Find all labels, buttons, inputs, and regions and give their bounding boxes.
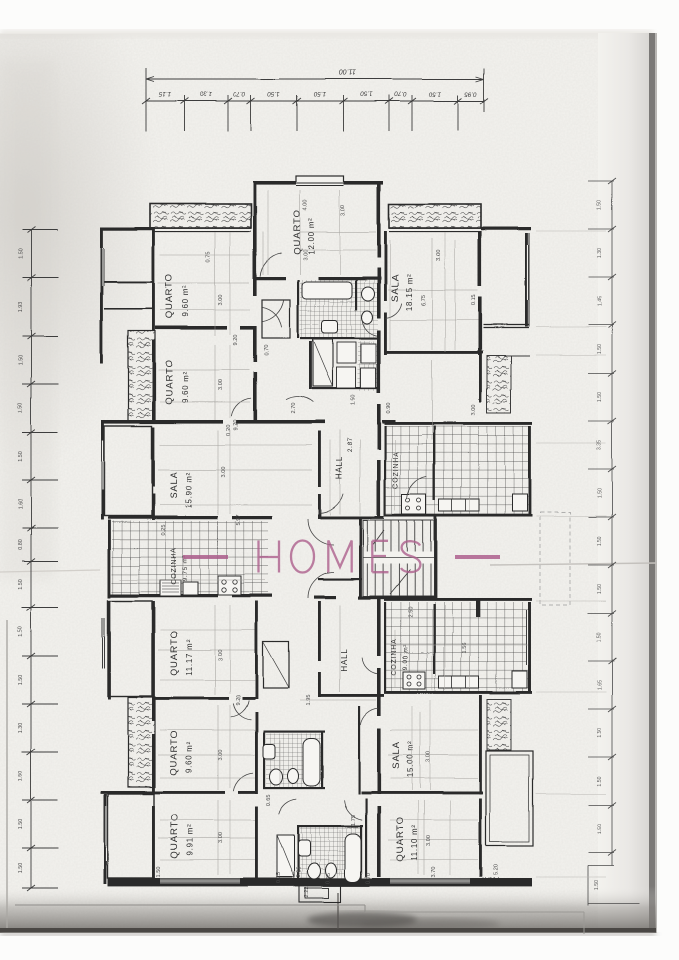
svg-text:0.70: 0.70 xyxy=(233,90,246,97)
svg-text:3.35: 3.35 xyxy=(597,440,603,450)
svg-text:1.50: 1.50 xyxy=(18,249,24,260)
svg-text:COZINHA: COZINHA xyxy=(393,451,400,488)
svg-text:COZINHA: COZINHA xyxy=(391,638,398,675)
svg-text:0.65: 0.65 xyxy=(266,795,272,806)
svg-text:4.00: 4.00 xyxy=(303,200,309,211)
svg-text:1.50: 1.50 xyxy=(597,488,603,498)
svg-text:3.00: 3.00 xyxy=(221,467,227,478)
svg-text:11.10 m²: 11.10 m² xyxy=(410,825,419,862)
svg-text:9.20: 9.20 xyxy=(233,335,239,346)
svg-text:1.50: 1.50 xyxy=(18,627,24,638)
svg-text:1.30: 1.30 xyxy=(18,723,24,734)
svg-text:SALA: SALA xyxy=(390,274,401,302)
svg-text:1.50: 1.50 xyxy=(597,776,603,786)
svg-text:2.70: 2.70 xyxy=(291,403,297,414)
svg-text:1.50: 1.50 xyxy=(156,867,162,878)
svg-text:2.87: 2.87 xyxy=(348,438,354,453)
svg-text:1.50: 1.50 xyxy=(597,536,603,546)
svg-text:1.93: 1.93 xyxy=(18,302,24,313)
svg-text:0.75: 0.75 xyxy=(206,252,212,263)
svg-text:1.30: 1.30 xyxy=(199,90,212,97)
svg-text:0.70: 0.70 xyxy=(264,345,270,356)
svg-text:3.00: 3.00 xyxy=(436,250,442,261)
svg-text:9.60 m²: 9.60 m² xyxy=(185,741,194,773)
svg-text:3.00: 3.00 xyxy=(218,295,224,306)
svg-text:0.90: 0.90 xyxy=(386,403,392,414)
svg-text:0.80: 0.80 xyxy=(18,539,24,550)
svg-text:1.65: 1.65 xyxy=(597,680,603,690)
svg-text:QUARTO: QUARTO xyxy=(164,359,175,405)
svg-text:9.60 m²: 9.60 m² xyxy=(181,285,190,317)
svg-text:3.00: 3.00 xyxy=(341,205,347,216)
svg-text:3.00: 3.00 xyxy=(218,750,224,761)
svg-text:0.25: 0.25 xyxy=(161,525,167,536)
svg-text:2.50: 2.50 xyxy=(408,607,414,618)
svg-text:1.30: 1.30 xyxy=(597,248,603,258)
svg-text:3.70: 3.70 xyxy=(431,867,437,878)
svg-text:QUARTO: QUARTO xyxy=(169,730,180,776)
svg-text:1.50: 1.50 xyxy=(18,675,24,686)
svg-text:1.45: 1.45 xyxy=(597,296,603,306)
svg-text:1.50: 1.50 xyxy=(428,90,441,97)
svg-text:1.50: 1.50 xyxy=(18,451,24,462)
svg-text:9.20: 9.20 xyxy=(236,695,242,706)
svg-text:1.50: 1.50 xyxy=(594,880,600,890)
svg-text:1.60: 1.60 xyxy=(18,499,24,510)
svg-text:HALL: HALL xyxy=(340,648,349,671)
svg-text:1.50: 1.50 xyxy=(359,90,372,97)
svg-text:1.56: 1.56 xyxy=(462,643,468,654)
svg-text:0.65: 0.65 xyxy=(326,873,332,884)
svg-text:3.00: 3.00 xyxy=(471,405,477,416)
svg-text:5.97: 5.97 xyxy=(236,515,242,526)
svg-text:1.50: 1.50 xyxy=(351,395,357,406)
svg-text:3.65: 3.65 xyxy=(296,867,302,878)
svg-text:SALA: SALA xyxy=(391,741,402,769)
svg-text:1.50: 1.50 xyxy=(18,863,24,874)
svg-text:3.00: 3.00 xyxy=(426,752,432,763)
svg-text:1.50: 1.50 xyxy=(18,771,24,782)
svg-text:1.50: 1.50 xyxy=(597,584,603,594)
svg-text:3.00: 3.00 xyxy=(426,836,432,847)
svg-text:9.00 m²: 9.00 m² xyxy=(402,644,409,671)
svg-text:1.50: 1.50 xyxy=(18,819,24,830)
svg-text:15.00 m²: 15.00 m² xyxy=(406,740,415,777)
svg-text:11.00: 11.00 xyxy=(338,68,355,75)
svg-text:1.15: 1.15 xyxy=(158,90,171,97)
svg-text:11.17 m²: 11.17 m² xyxy=(185,639,194,676)
svg-text:3.00: 3.00 xyxy=(218,380,224,391)
svg-text:0.15: 0.15 xyxy=(276,873,282,884)
svg-text:1.50: 1.50 xyxy=(267,90,280,97)
svg-text:3.00: 3.00 xyxy=(218,650,224,661)
svg-text:2.22: 2.22 xyxy=(304,887,310,898)
svg-text:QUARTO: QUARTO xyxy=(164,273,175,319)
svg-text:0.95: 0.95 xyxy=(464,90,477,97)
svg-text:0.15: 0.15 xyxy=(471,295,477,306)
svg-text:1.50: 1.50 xyxy=(18,355,24,366)
svg-text:QUARTO: QUARTO xyxy=(292,209,303,255)
svg-text:5.20: 5.20 xyxy=(493,865,499,876)
svg-text:12.00 m²: 12.00 m² xyxy=(307,217,316,254)
svg-text:0.70: 0.70 xyxy=(394,90,407,97)
svg-text:0.20: 0.20 xyxy=(226,425,232,436)
svg-text:1.50: 1.50 xyxy=(597,392,603,402)
svg-text:QUARTO: QUARTO xyxy=(395,816,406,862)
svg-text:15.90 m²: 15.90 m² xyxy=(185,471,194,508)
svg-text:0.70: 0.70 xyxy=(366,873,372,884)
svg-text:9.20: 9.20 xyxy=(233,420,239,431)
svg-text:1.50: 1.50 xyxy=(597,344,603,354)
svg-text:1.50: 1.50 xyxy=(597,200,603,210)
svg-text:QUARTO: QUARTO xyxy=(169,630,180,676)
svg-text:1.50: 1.50 xyxy=(597,824,603,834)
svg-text:18.15 m²: 18.15 m² xyxy=(405,273,414,310)
svg-text:1.50: 1.50 xyxy=(313,90,326,97)
svg-text:1.50: 1.50 xyxy=(18,579,24,590)
svg-text:HALL: HALL xyxy=(335,456,344,479)
svg-text:1.50: 1.50 xyxy=(597,728,603,738)
svg-text:SALA: SALA xyxy=(169,471,180,499)
svg-text:3.00: 3.00 xyxy=(303,250,309,261)
svg-text:6.75: 6.75 xyxy=(421,295,427,306)
svg-text:1.75: 1.75 xyxy=(351,815,357,826)
svg-text:1.50: 1.50 xyxy=(597,632,603,642)
svg-text:9.60 m²: 9.60 m² xyxy=(181,371,190,403)
svg-text:COZINHA: COZINHA xyxy=(171,547,178,584)
svg-text:1.50: 1.50 xyxy=(18,403,24,414)
svg-text:9.91 m²: 9.91 m² xyxy=(185,824,194,856)
svg-text:3.00: 3.00 xyxy=(218,833,224,844)
